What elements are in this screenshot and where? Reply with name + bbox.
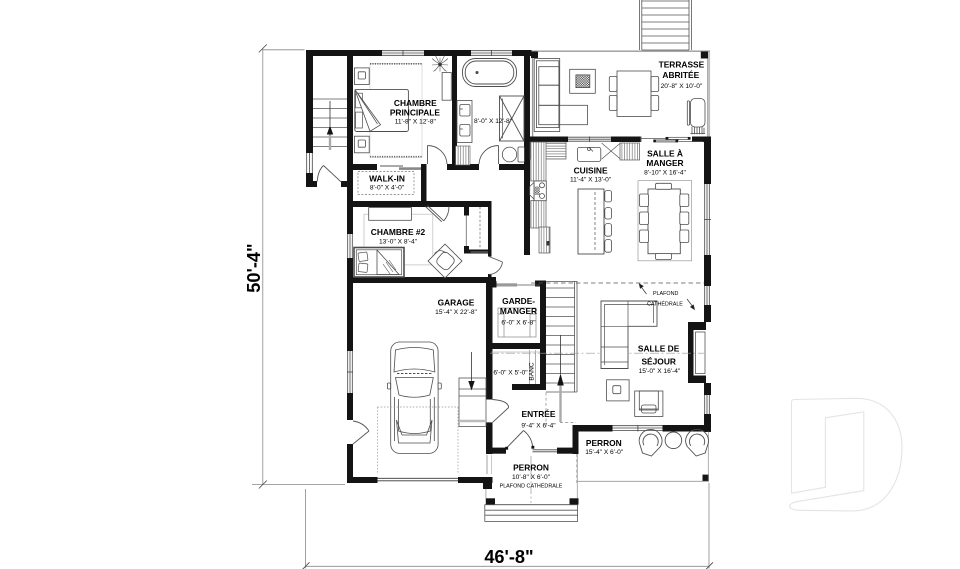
svg-text:46'-8": 46'-8" <box>484 547 533 567</box>
svg-text:BANC: BANC <box>529 362 536 381</box>
svg-text:6'-0" X 6'-8": 6'-0" X 6'-8" <box>501 319 536 326</box>
svg-text:CUISINE: CUISINE <box>574 165 608 175</box>
svg-text:9'-4" X 6'-4": 9'-4" X 6'-4" <box>521 422 556 429</box>
svg-text:PLAFOND CATHÉDRALE: PLAFOND CATHÉDRALE <box>500 482 563 489</box>
svg-text:TERRASSE: TERRASSE <box>659 60 705 70</box>
svg-text:15'-4" X 22'-8": 15'-4" X 22'-8" <box>435 309 477 316</box>
svg-text:PLAFOND: PLAFOND <box>653 291 679 297</box>
svg-text:6'-0" X 5'-0": 6'-0" X 5'-0" <box>493 370 528 377</box>
svg-text:11'-4" X 13'-0": 11'-4" X 13'-0" <box>570 177 612 184</box>
svg-text:10'-8" X 6'-0": 10'-8" X 6'-0" <box>512 474 551 481</box>
svg-text:50'-4": 50'-4" <box>244 243 264 292</box>
svg-text:PRINCIPALE: PRINCIPALE <box>390 108 441 118</box>
svg-text:15'-4" X 6'-0": 15'-4" X 6'-0" <box>585 449 624 456</box>
svg-text:SALLE DE: SALLE DE <box>638 344 680 354</box>
svg-text:20'-8" X 10'-0": 20'-8" X 10'-0" <box>661 83 703 90</box>
svg-text:PERRON: PERRON <box>586 438 622 448</box>
svg-text:8'-0" X 12'-8": 8'-0" X 12'-8" <box>474 118 513 125</box>
svg-text:ABRITÉE: ABRITÉE <box>662 69 699 80</box>
svg-text:MANGER: MANGER <box>500 306 537 316</box>
svg-text:WALK-IN: WALK-IN <box>369 173 405 183</box>
svg-text:8'-10" X 16'-4": 8'-10" X 16'-4" <box>644 170 686 177</box>
svg-text:13'-0" X 8'-4": 13'-0" X 8'-4" <box>379 239 418 246</box>
svg-text:8'-0" X 4'-0": 8'-0" X 4'-0" <box>370 185 405 192</box>
svg-text:11'-8" X 12'-8": 11'-8" X 12'-8" <box>395 118 437 125</box>
svg-text:CHAMBRE #2: CHAMBRE #2 <box>371 227 426 237</box>
svg-text:SÉJOUR: SÉJOUR <box>641 355 675 366</box>
svg-text:SALLE À: SALLE À <box>647 147 683 158</box>
svg-text:15'-0" X 16'-4": 15'-0" X 16'-4" <box>639 368 681 375</box>
svg-text:GARAGE: GARAGE <box>438 298 475 308</box>
svg-text:MANGER: MANGER <box>646 158 683 168</box>
svg-text:CATHÉDRALE: CATHÉDRALE <box>647 300 683 307</box>
svg-text:GARDE-: GARDE- <box>502 296 535 306</box>
svg-text:ENTRÉE: ENTRÉE <box>522 408 556 419</box>
svg-text:PERRON: PERRON <box>513 462 549 472</box>
